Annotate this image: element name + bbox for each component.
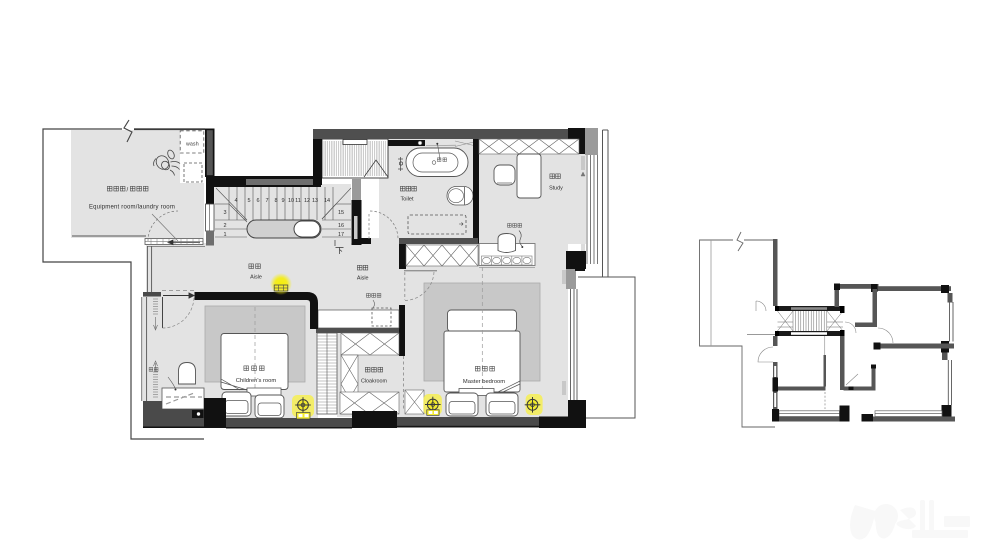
svg-text:Study: Study [549,186,563,192]
svg-text:11: 11 [295,198,301,204]
svg-text:13: 13 [312,198,318,204]
svg-text:Equipment room/laundry room: Equipment room/laundry room [89,205,175,211]
svg-text:4: 4 [234,198,237,204]
svg-text:10: 10 [288,198,294,204]
svg-text:16: 16 [338,223,344,229]
svg-text:5: 5 [247,198,250,204]
svg-text:8: 8 [274,198,277,204]
svg-text:12: 12 [304,198,310,204]
svg-text:3: 3 [223,210,226,216]
svg-text:7: 7 [265,198,268,204]
svg-text:Aisle: Aisle [357,276,369,282]
svg-text:Aisle: Aisle [250,275,262,281]
svg-text:15: 15 [338,210,344,216]
svg-text:Children's room: Children's room [236,378,277,384]
svg-text:Cloakroom: Cloakroom [361,379,388,385]
svg-text:Master bedroom: Master bedroom [463,379,505,385]
svg-text:1: 1 [223,232,226,238]
svg-text:2: 2 [223,223,226,229]
svg-text:6: 6 [256,198,259,204]
svg-text:wash: wash [186,142,199,148]
svg-text:17: 17 [338,232,344,238]
svg-text:Toilet: Toilet [400,197,414,203]
svg-text:9: 9 [281,198,284,204]
svg-text:14: 14 [324,198,330,204]
